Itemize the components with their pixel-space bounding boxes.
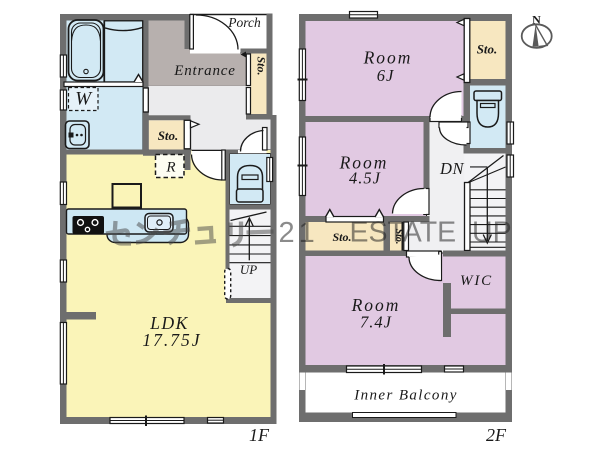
svg-text:17.75J: 17.75J — [142, 330, 201, 350]
svg-text:7.4J: 7.4J — [360, 313, 392, 332]
svg-text:Inner Balcony: Inner Balcony — [353, 388, 458, 404]
svg-text:Sto.: Sto. — [158, 128, 179, 143]
svg-text:Sto.: Sto. — [477, 42, 498, 57]
svg-text:WIC: WIC — [460, 273, 493, 289]
svg-text:6J: 6J — [377, 66, 395, 85]
svg-text:1F: 1F — [249, 425, 270, 445]
svg-text:Room: Room — [363, 48, 413, 68]
svg-text:4.5J: 4.5J — [349, 169, 381, 188]
svg-text:DN: DN — [439, 159, 464, 178]
svg-text:21: 21 — [279, 217, 319, 249]
svg-text:W: W — [75, 89, 93, 110]
svg-text:N: N — [532, 13, 541, 27]
svg-text:Sto.: Sto. — [255, 56, 269, 75]
svg-text:UP: UP — [472, 217, 512, 249]
svg-text:R: R — [165, 160, 175, 176]
svg-text:Entrance: Entrance — [173, 63, 235, 79]
svg-text:2F: 2F — [486, 425, 507, 445]
svg-text:ESTATE: ESTATE — [350, 217, 457, 249]
svg-text:Porch: Porch — [227, 15, 261, 30]
svg-text:UP: UP — [240, 262, 257, 277]
